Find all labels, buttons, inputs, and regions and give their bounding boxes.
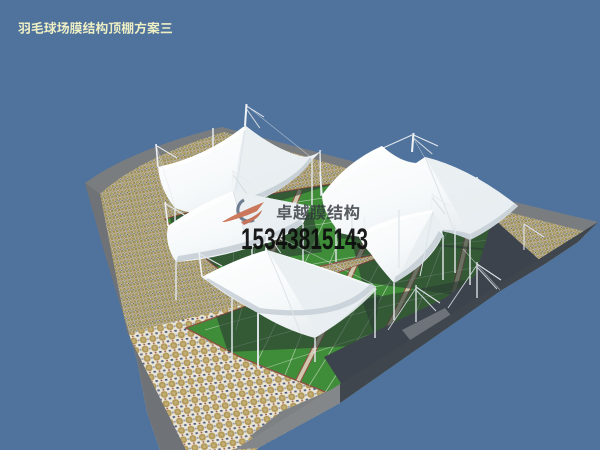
svg-text:15343815143: 15343815143 bbox=[241, 223, 368, 256]
